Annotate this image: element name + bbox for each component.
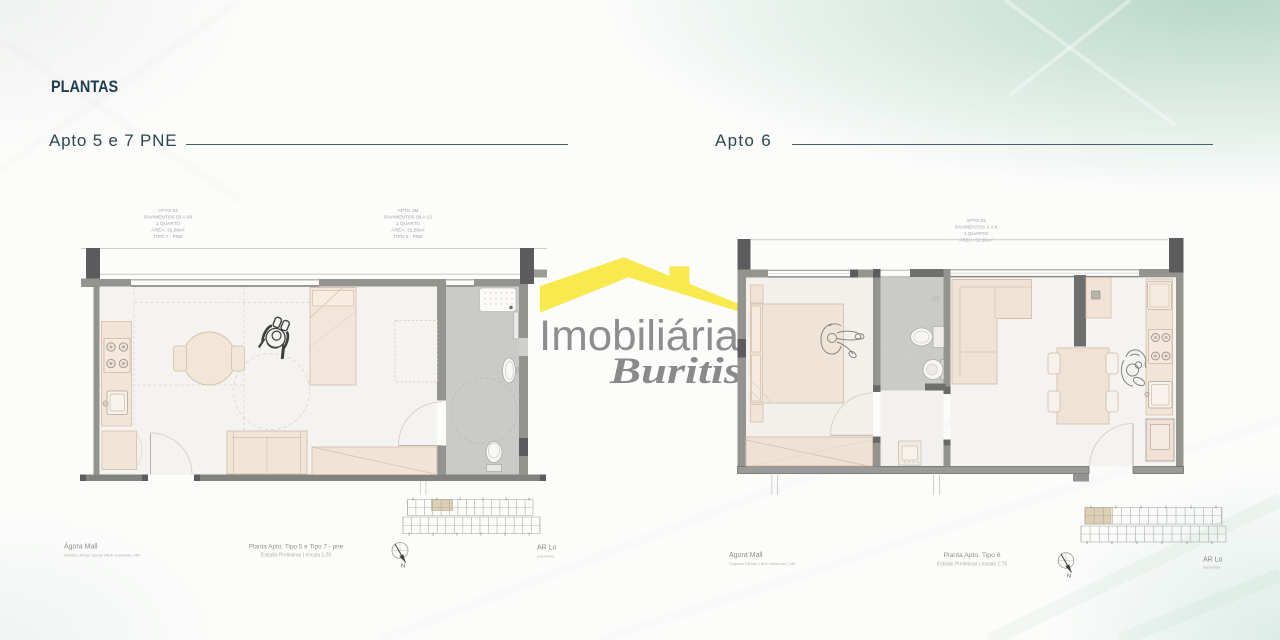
svg-text:arquitetura: arquitetura [537,555,554,559]
svg-text:1 QUARTO: 1 QUARTO [156,221,181,227]
svg-text:APTO 04: APTO 04 [158,208,178,214]
svg-text:TIPO 5 - PNE: TIPO 5 - PNE [393,234,422,240]
svg-text:1 QUARTO: 1 QUARTO [964,231,989,237]
svg-text:Estúdio Preliminar | escala: Estúdio Preliminar | escala 1:75 [937,562,1007,568]
svg-text:AR Lo: AR Lo [537,545,557,552]
svg-text:Ágora Mall: Ágora Mall [64,542,98,551]
svg-text:APTO 1M: APTO 1M [398,208,419,214]
svg-text:AR Lo: AR Lo [1203,557,1223,564]
svg-text:Planta Apto. Tipo 6: Planta Apto. Tipo 6 [943,552,1000,559]
svg-text:1 QUARTO: 1 QUARTO [396,221,421,227]
svg-text:PAVIMENTOS 2 A 8: PAVIMENTOS 2 A 8 [955,225,998,231]
svg-text:Agora Mall: Agora Mall [729,552,763,559]
svg-text:N: N [1067,574,1071,580]
svg-text:Planta Apto. Tipo 5 e Tipo 7 -: Planta Apto. Tipo 5 e Tipo 7 - pne [249,544,344,551]
svg-text:Estúdio Preliminar | escala: Estúdio Preliminar | escala 1:20 [261,553,331,559]
svg-text:Sagrada Família | Belo Horizon: Sagrada Família | Belo Horizonte | MG [729,561,796,566]
svg-text:APTO 02: APTO 02 [966,218,986,224]
svg-text:N: N [401,564,405,570]
svg-text:Sabará | Minas Gerais | Belo H: Sabará | Minas Gerais | Belo Horizonte |… [64,553,140,558]
svg-text:PAVIMENTOS 09 A 12: PAVIMENTOS 09 A 12 [384,215,432,221]
svg-text:PAVIMENTOS 02 A 08: PAVIMENTOS 02 A 08 [144,215,192,221]
svg-text:ÁREA: 32,55m²: ÁREA: 32,55m² [391,227,425,234]
svg-text:ÁREA: 32,66m²: ÁREA: 32,66m² [151,227,185,234]
svg-text:TIPO 7 - PNE: TIPO 7 - PNE [153,234,182,240]
svg-text:arquitetura: arquitetura [1203,566,1220,570]
